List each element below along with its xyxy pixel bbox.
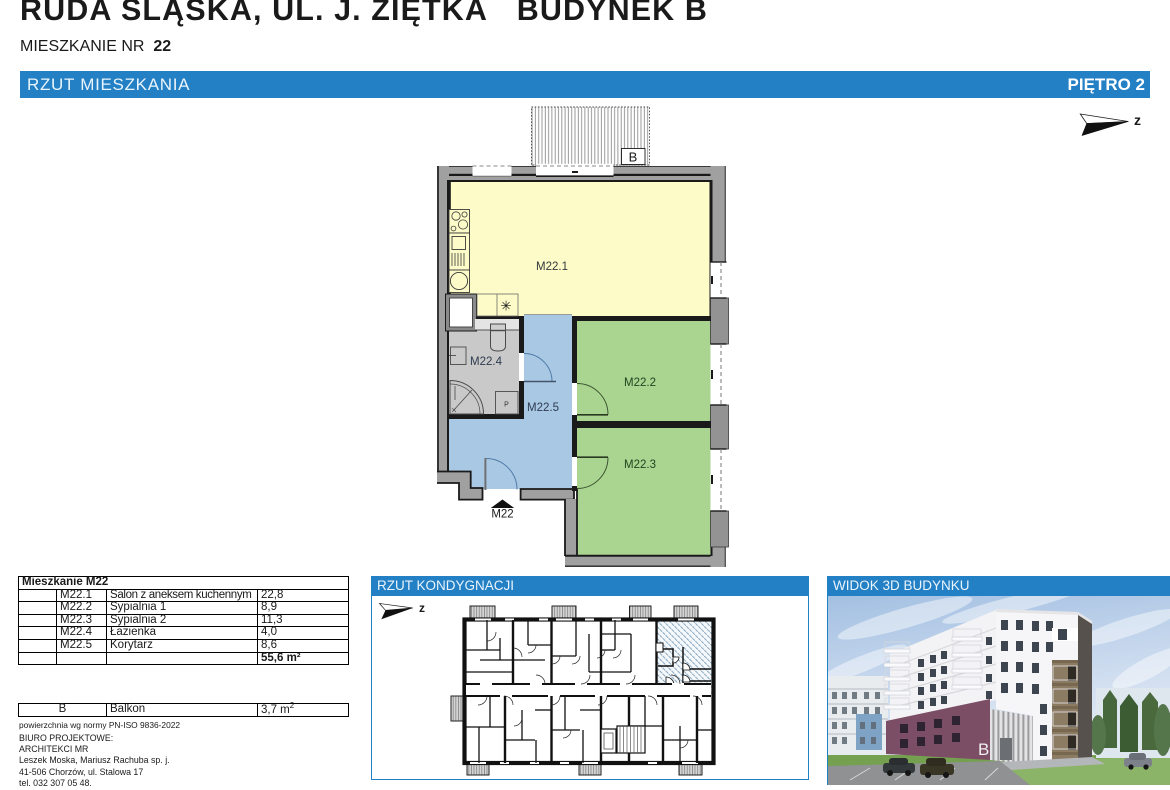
- svg-text:M22.1: M22.1: [536, 261, 568, 273]
- svg-text:B: B: [629, 150, 638, 165]
- svg-text:M22.4: M22.4: [470, 356, 503, 368]
- svg-text:M22.2: M22.2: [624, 377, 656, 389]
- svg-text:M22.3: M22.3: [624, 459, 656, 471]
- svg-text:✳: ✳: [500, 299, 511, 314]
- svg-text:z: z: [1134, 112, 1141, 128]
- svg-text:z: z: [419, 601, 425, 615]
- svg-text:M22: M22: [491, 509, 513, 521]
- svg-text:B: B: [978, 740, 989, 759]
- svg-text:P: P: [504, 402, 509, 409]
- svg-text:M22.5: M22.5: [527, 402, 559, 414]
